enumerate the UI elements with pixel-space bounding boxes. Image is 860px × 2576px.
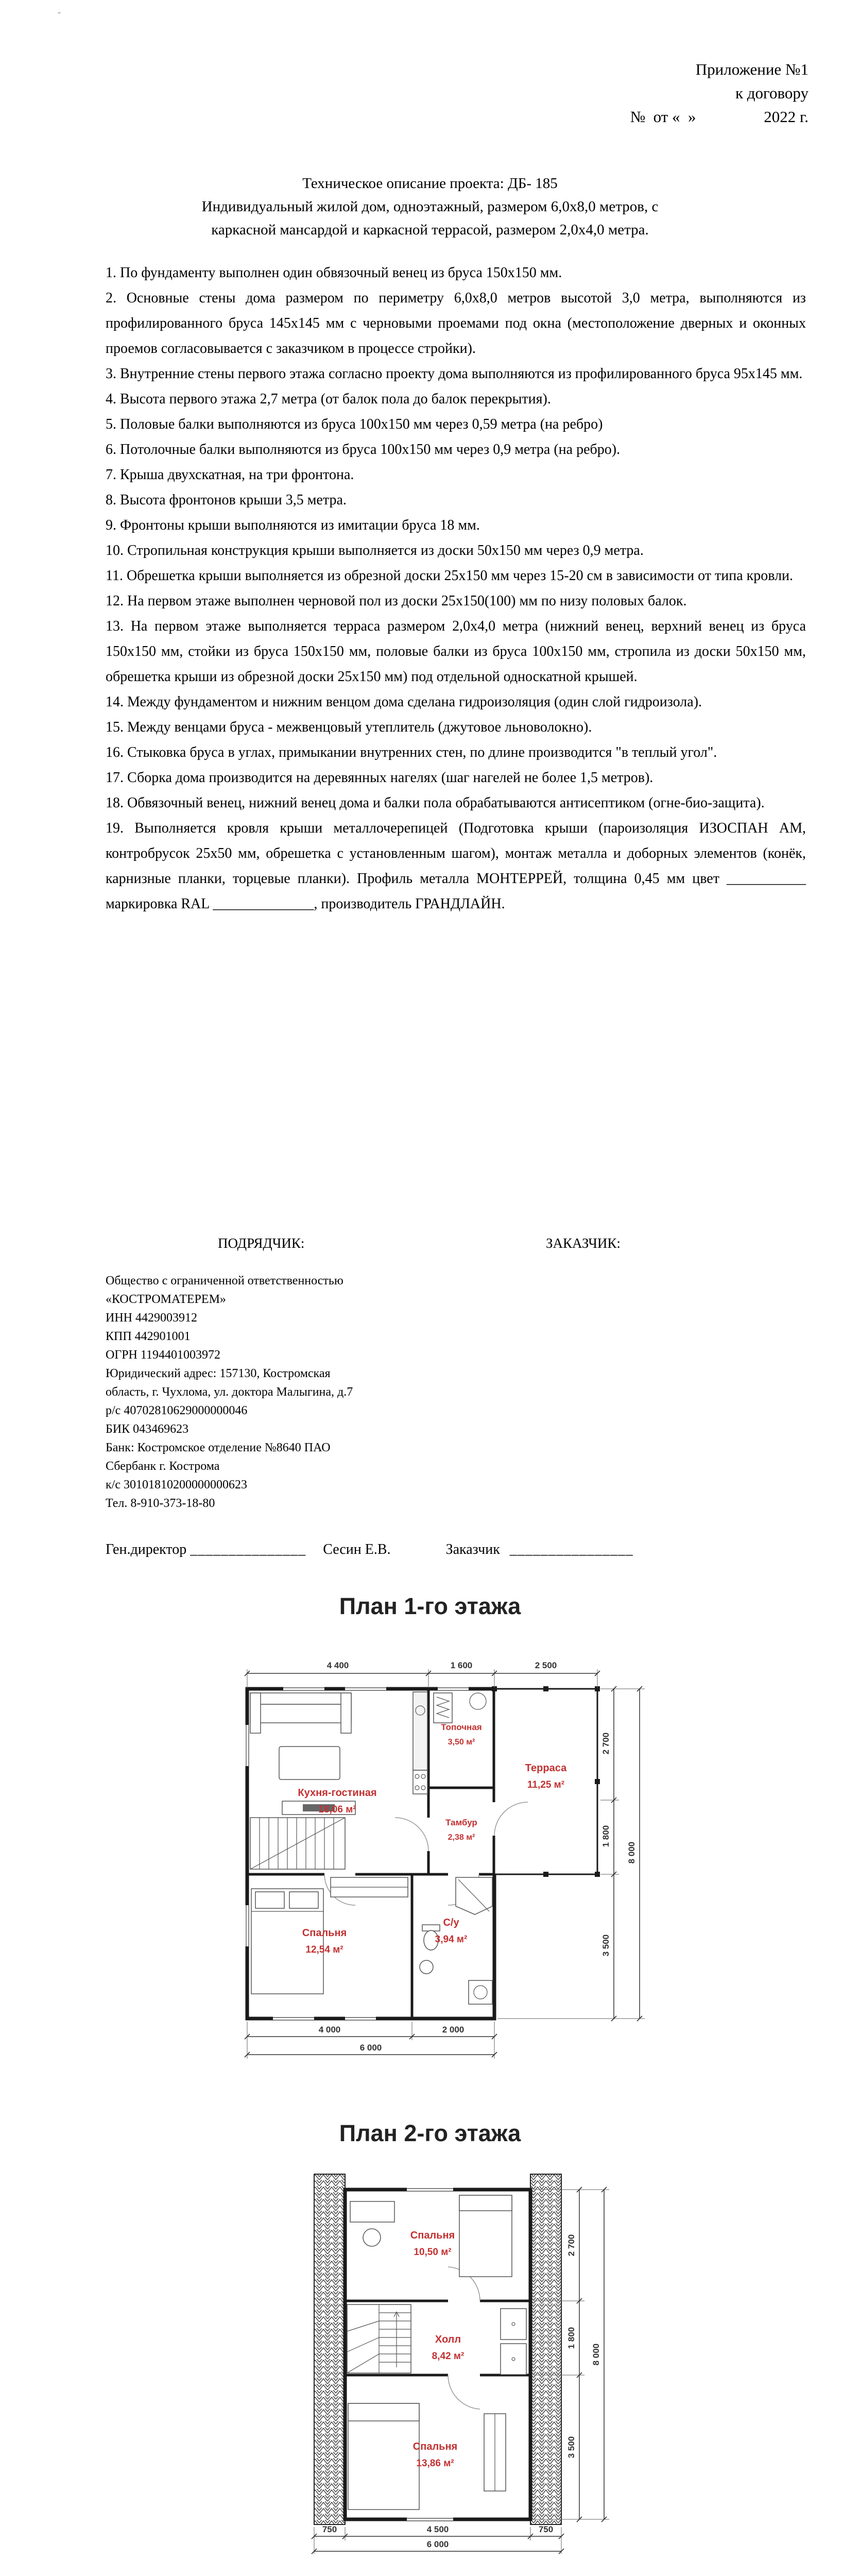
dimension-label: 2 700 <box>601 1733 611 1755</box>
company-account: р/с 40702810629000000046 <box>106 1401 497 1420</box>
contractor-details: Общество с ограниченной ответственностью… <box>106 1272 497 1513</box>
company-brand-line: «КОСТРОМАТЕРЕМ» <box>106 1290 497 1309</box>
dimension-label: 1 800 <box>601 1825 611 1848</box>
spec-item-19: 19. Выполняется кровля крыши металлочере… <box>106 816 806 917</box>
spec-item-12: 12. На первом этаже выполнен черновой по… <box>106 588 806 614</box>
contract-number-line: № от « » 2022 г. <box>630 105 809 129</box>
company-ogrn: ОГРН 1194401003972 <box>106 1346 497 1364</box>
spec-item-2: 2. Основные стены дома размером по перим… <box>106 285 806 361</box>
dimension-label: 4 000 <box>319 2025 341 2035</box>
spec-item-6: 6. Потолочные балки выполняются из бруса… <box>106 437 806 462</box>
room-label: Тамбур <box>445 1818 477 1827</box>
dimension-label: 1 800 <box>566 2327 576 2349</box>
room-area: 3,94 м² <box>435 1934 468 1945</box>
dimension-label: 1 600 <box>451 1660 473 1670</box>
room-area: 8,42 м² <box>432 2351 465 2362</box>
customer-signature-label: Заказчик <box>446 1541 500 1557</box>
room-area: 11,25 м² <box>527 1780 564 1790</box>
room-label: Терраса <box>525 1762 567 1774</box>
company-address-1: Юридический адрес: 157130, Костромская <box>106 1364 497 1383</box>
plan2-stairs <box>347 2304 411 2373</box>
spec-item-14: 14. Между фундаментом и нижним венцом до… <box>106 689 806 715</box>
dimension-label: 6 000 <box>427 2539 449 2549</box>
room-area: 12,54 м² <box>305 1944 343 1955</box>
company-bik: БИК 043469623 <box>106 1420 497 1438</box>
director-name: Сесин Е.В. <box>323 1541 390 1557</box>
room-area: 10,50 м² <box>414 2247 451 2258</box>
dimension-label: 4 400 <box>327 1660 349 1670</box>
spec-item-7: 7. Крыша двухскатная, на три фронтона. <box>106 462 806 487</box>
dimension-label: 8 000 <box>591 2344 601 2366</box>
dimension-label: 6 000 <box>360 2043 382 2053</box>
appendix-line: Приложение №1 <box>630 58 809 81</box>
company-corr-acct: к/с 30101810200000000623 <box>106 1476 497 1494</box>
director-signature-line: _______________ <box>190 1541 306 1557</box>
company-kpp: КПП 442901001 <box>106 1327 497 1346</box>
spec-item-4: 4. Высота первого этажа 2,7 метра (от ба… <box>106 386 806 412</box>
room-area: 18,06 м² <box>318 1804 356 1815</box>
spec-item-5: 5. Половые балки выполняются из бруса 10… <box>106 412 806 437</box>
room-label: Топочная <box>441 1722 481 1732</box>
room-area: 3,50 м² <box>448 1738 475 1747</box>
spec-item-3: 3. Внутренние стены первого этажа соглас… <box>106 361 806 386</box>
spec-item-17: 17. Сборка дома производится на деревянн… <box>106 765 806 790</box>
spec-item-15: 15. Между венцами бруса - межвенцовый ут… <box>106 715 806 740</box>
spec-item-8: 8. Высота фронтонов крыши 3,5 метра. <box>106 487 806 513</box>
room-area: 13,86 м² <box>416 2458 454 2469</box>
director-label: Ген.директор <box>106 1541 186 1557</box>
title-line-2: Индивидуальный жилой дом, одноэтажный, р… <box>0 195 860 218</box>
plan1-stairs <box>250 1818 345 1869</box>
room-label: Спальня <box>410 2230 455 2241</box>
floor-plan-2: Спальня 10,50 м² Холл 8,42 м² Спальня 13… <box>278 2161 669 2558</box>
dimension-label: 8 000 <box>627 1842 637 1864</box>
dimension-label: 2 000 <box>442 2025 465 2035</box>
parties-row: ПОДРЯДЧИК: ЗАКАЗЧИК: <box>106 1235 806 1256</box>
room-label: Кухня-гостиная <box>298 1787 376 1799</box>
plan2-title: План 2-го этажа <box>0 2120 860 2147</box>
stray-mark: ” <box>58 10 61 19</box>
company-name-line: Общество с ограниченной ответственностью <box>106 1272 497 1290</box>
company-address-2: область, г. Чухлома, ул. доктора Малыгин… <box>106 1383 497 1401</box>
appendix-header: Приложение №1 к договору № от « » 2022 г… <box>630 58 809 129</box>
company-phone: Тел. 8-910-373-18-80 <box>106 1494 497 1513</box>
spec-list: 1. По фундаменту выполнен один обвязочны… <box>106 260 806 917</box>
contractor-label: ПОДРЯДЧИК: <box>218 1235 304 1251</box>
dimension-label: 2 700 <box>566 2234 576 2257</box>
dimension-label: 3 500 <box>566 2436 576 2459</box>
dimension-label: 750 <box>539 2524 553 2534</box>
company-bank-2: Сбербанк г. Кострома <box>106 1457 497 1476</box>
spec-item-16: 16. Стыковка бруса в углах, примыкании в… <box>106 740 806 765</box>
dimension-label: 2 500 <box>535 1660 557 1670</box>
spec-item-18: 18. Обвязочный венец, нижний венец дома … <box>106 790 806 816</box>
spec-item-13: 13. На первом этаже выполняется терраса … <box>106 614 806 689</box>
title-line-3: каркасной мансардой и каркасной террасой… <box>0 218 860 242</box>
title-line-1: Техническое описание проекта: ДБ- 185 <box>0 172 860 195</box>
document-page: ” Приложение №1 к договору № от « » 2022… <box>0 0 860 2576</box>
room-label: Спальня <box>413 2441 457 2452</box>
floor-plan-1: Кухня-гостиная 18,06 м² Топочная 3,50 м²… <box>221 1648 675 2080</box>
spec-item-11: 11. Обрешетка крыши выполняется из обрез… <box>106 563 806 588</box>
spec-item-1: 1. По фундаменту выполнен один обвязочны… <box>106 260 806 285</box>
spec-item-10: 10. Стропильная конструкция крыши выполн… <box>106 538 806 563</box>
plan1-title: План 1-го этажа <box>0 1593 860 1620</box>
room-area: 2,38 м² <box>448 1833 475 1842</box>
room-label: Спальня <box>302 1927 347 1939</box>
signature-row: Ген.директор _______________ Сесин Е.В. … <box>106 1541 806 1558</box>
room-label: Холл <box>435 2334 461 2345</box>
customer-signature-line: ________________ <box>510 1541 633 1557</box>
customer-label: ЗАКАЗЧИК: <box>546 1235 621 1251</box>
company-inn: ИНН 4429003912 <box>106 1309 497 1327</box>
spec-item-9: 9. Фронтоны крыши выполняются из имитаци… <box>106 513 806 538</box>
dimension-label: 750 <box>322 2524 337 2534</box>
dimension-label: 3 500 <box>601 1935 611 1957</box>
room-label: С/у <box>443 1917 459 1928</box>
document-title: Техническое описание проекта: ДБ- 185 Ин… <box>0 172 860 242</box>
dimension-label: 4 500 <box>427 2524 449 2534</box>
company-bank-1: Банк: Костромское отделение №8640 ПАО <box>106 1438 497 1457</box>
contract-line: к договору <box>630 81 809 105</box>
